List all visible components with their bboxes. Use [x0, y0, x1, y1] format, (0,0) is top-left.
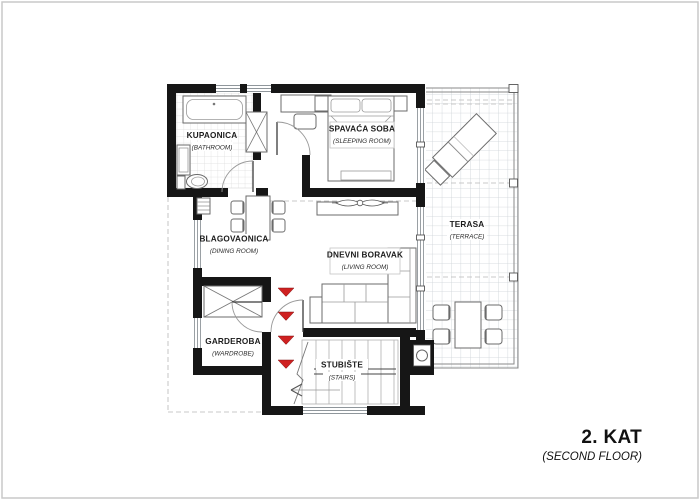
dining-label: BLAGOVAONICA — [199, 235, 268, 244]
room-label-living: DNEVNI BORAVAK (LIVING ROOM) — [327, 248, 403, 274]
plant-decor — [332, 200, 388, 206]
room-label-stairs: STUBIŠTE (STAIRS) — [316, 359, 368, 382]
terrace-sublabel: (TERRACE) — [450, 234, 485, 241]
window — [193, 220, 202, 268]
bedroom-sublabel: (SLEEPING ROOM) — [333, 138, 391, 145]
toilet — [177, 175, 208, 190]
window — [303, 406, 367, 415]
sink — [177, 145, 190, 175]
floor-subtitle: (SECOND FLOOR) — [542, 451, 642, 463]
desk-chair — [294, 114, 316, 129]
dining-chair — [231, 201, 244, 214]
living-label: DNEVNI BORAVAK — [327, 251, 403, 260]
terrace-chair — [433, 329, 450, 344]
radiator — [197, 198, 210, 214]
railing-post — [510, 273, 518, 281]
window — [193, 318, 202, 348]
bathroom-label: KUPAONICA — [187, 131, 238, 140]
fireplace — [410, 340, 434, 375]
floor-plan-canvas: TERASA (TERRACE) — [0, 0, 700, 500]
terrace-label: TERASA — [450, 220, 485, 229]
duct-shaft — [246, 112, 267, 152]
stairs-label: STUBIŠTE — [321, 359, 363, 370]
dining-chair — [231, 219, 244, 232]
window — [216, 84, 240, 93]
nightstand — [394, 96, 407, 111]
railing-post — [510, 179, 518, 187]
wardrobe-sublabel: (WARDROBE) — [212, 351, 254, 358]
window — [247, 84, 271, 93]
bathroom-sublabel: (BATHROOM) — [192, 145, 233, 152]
dining-chair — [272, 201, 285, 214]
terrace-area: TERASA (TERRACE) — [423, 85, 518, 369]
living-sublabel: (LIVING ROOM) — [342, 264, 389, 271]
sofa-armrest — [310, 297, 322, 323]
glass-wall — [416, 207, 425, 330]
terrace-chair — [485, 329, 502, 344]
dining-table — [246, 196, 270, 240]
terrace-chair — [433, 305, 450, 320]
nightstand — [315, 96, 328, 111]
bathtub — [183, 96, 246, 123]
floor-plan-page: TERASA (TERRACE) — [0, 0, 700, 500]
terrace-chair — [485, 305, 502, 320]
wardrobe-label: GARDEROBA — [205, 337, 260, 346]
dining-chair — [272, 219, 285, 232]
room-label-bedroom: SPAVAĆA SOBA (SLEEPING ROOM) — [329, 122, 395, 148]
railing-post — [509, 85, 518, 93]
terrace-table — [455, 302, 481, 348]
dining-sublabel: (DINING ROOM) — [210, 248, 258, 255]
stairs-sublabel: (STAIRS) — [329, 375, 356, 382]
bedroom-label: SPAVAĆA SOBA — [329, 123, 395, 134]
glass-wall — [416, 108, 425, 183]
floor-title: 2. KAT — [581, 427, 642, 448]
